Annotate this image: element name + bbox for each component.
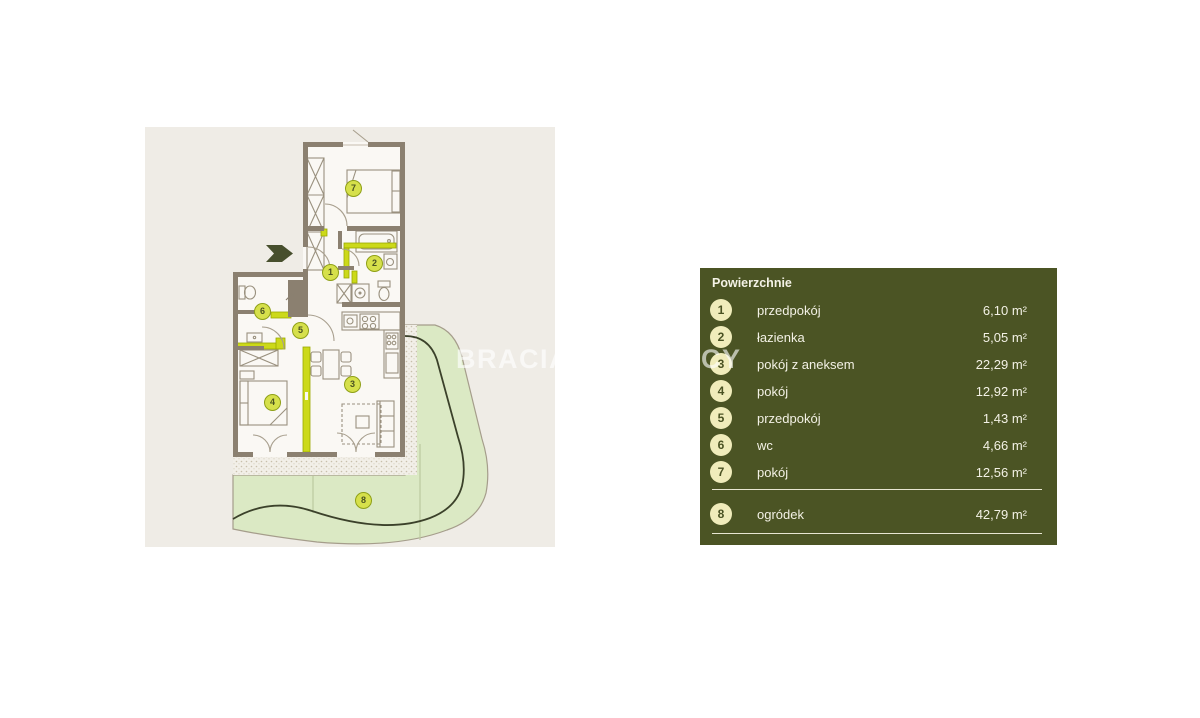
legend-area-value: 42,79 m² xyxy=(976,507,1027,522)
legend-area-value: 4,66 m² xyxy=(983,438,1027,453)
legend-area-value: 12,92 m² xyxy=(976,384,1027,399)
legend-circle-4: 4 xyxy=(710,380,732,402)
floor-plan-panel: 1 2 3 4 5 6 7 8 xyxy=(145,127,555,547)
legend-title: Powierzchnie xyxy=(712,276,792,290)
legend-area-value: 12,56 m² xyxy=(976,465,1027,480)
legend-label: pokój xyxy=(757,465,788,480)
legend-separator xyxy=(712,533,1042,534)
legend-label: pokój z aneksem xyxy=(757,357,855,372)
legend-row: 3 pokój z aneksem 22,29 m² xyxy=(710,352,1027,376)
legend-separator xyxy=(712,489,1042,490)
page: 1 2 3 4 5 6 7 8 Powierzchnie 1 przedpokó… xyxy=(0,0,1200,718)
room-badge-5: 5 xyxy=(292,322,309,339)
legend-row: 1 przedpokój 6,10 m² xyxy=(710,298,1027,322)
legend-label: ogródek xyxy=(757,507,804,522)
legend-circle-1: 1 xyxy=(710,299,732,321)
entry-arrow-icon xyxy=(266,245,293,262)
room-badge-3: 3 xyxy=(344,376,361,393)
room-badge-6: 6 xyxy=(254,303,271,320)
legend-label: pokój xyxy=(757,384,788,399)
legend-circle-8: 8 xyxy=(710,503,732,525)
legend-row: 8 ogródek 42,79 m² xyxy=(710,502,1027,526)
legend-area-value: 22,29 m² xyxy=(976,357,1027,372)
legend-row: 2 łazienka 5,05 m² xyxy=(710,325,1027,349)
room-badge-7: 7 xyxy=(345,180,362,197)
apartment-interior xyxy=(233,142,405,457)
legend-row: 7 pokój 12,56 m² xyxy=(710,460,1027,484)
legend-circle-7: 7 xyxy=(710,461,732,483)
legend-label: łazienka xyxy=(757,330,805,345)
wardrobe-gap xyxy=(305,392,308,400)
legend-circle-3: 3 xyxy=(710,353,732,375)
legend-row: 4 pokój 12,92 m² xyxy=(710,379,1027,403)
room-badge-1: 1 xyxy=(322,264,339,281)
room-badge-8: 8 xyxy=(355,492,372,509)
legend-area-value: 5,05 m² xyxy=(983,330,1027,345)
legend-label: przedpokój xyxy=(757,303,821,318)
legend-panel: Powierzchnie 1 przedpokój 6,10 m² 2 łazi… xyxy=(700,268,1057,545)
room-badge-4: 4 xyxy=(264,394,281,411)
legend-circle-5: 5 xyxy=(710,407,732,429)
legend-row: 5 przedpokój 1,43 m² xyxy=(710,406,1027,430)
legend-circle-2: 2 xyxy=(710,326,732,348)
legend-area-value: 1,43 m² xyxy=(983,411,1027,426)
legend-area-value: 6,10 m² xyxy=(983,303,1027,318)
room-badge-2: 2 xyxy=(366,255,383,272)
legend-label: wc xyxy=(757,438,773,453)
legend-circle-6: 6 xyxy=(710,434,732,456)
legend-label: przedpokój xyxy=(757,411,821,426)
legend-row: 6 wc 4,66 m² xyxy=(710,433,1027,457)
